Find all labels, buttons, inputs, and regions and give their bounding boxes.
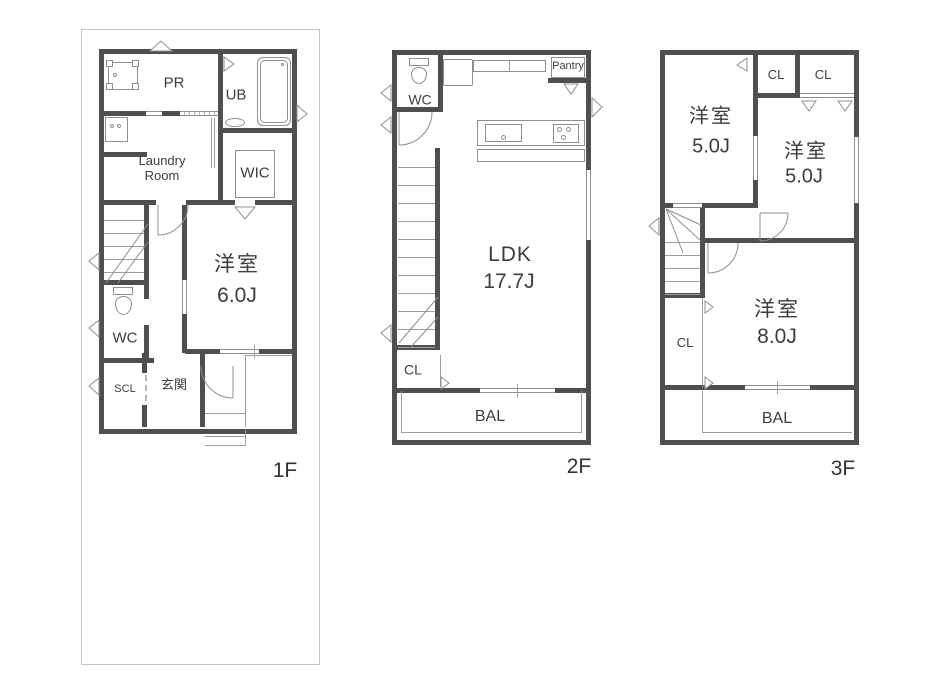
room-size-bedroom3: 8.0J [757,324,797,350]
vent-triangle [381,117,391,133]
door-triangle [705,377,713,389]
door-triangle [592,98,602,117]
room-size-ldk: 17.7J [483,269,534,295]
floor-label-1f: 1F [273,459,298,483]
window [586,170,591,240]
stair-run-line [411,317,438,347]
door-arc [760,213,788,241]
room-label-entrance: 玄関 [161,377,187,393]
room-label-cl2: CL [815,67,832,83]
room-size-bedroom1: 5.0J [692,135,730,160]
room-label-bedroom1: 洋室 [689,105,733,130]
window [854,137,859,203]
door-triangle [224,57,234,71]
room-label-cl1: CL [768,67,785,83]
floor-plan-canvas: PR UB Laundry Room WIC 洋室 6.0J WC SCL 玄関… [0,0,945,700]
room-label-balcony: BAL [475,407,505,427]
room-label-ub: UB [226,87,247,106]
room-size-bedroom: 6.0J [217,283,257,309]
vent-triangle [649,218,659,235]
porch-step [205,436,245,437]
door-triangle [838,101,852,111]
vent-triangle [381,325,391,342]
door-triangle [235,207,255,219]
stair-run-line [399,297,438,343]
room-label-ldk: LDK [488,242,532,268]
stair-run-line [106,224,148,283]
plan-symbols [104,54,292,429]
floor-plan-2f: WC Pantry LDK 17.7J CL BAL [392,50,591,445]
door-arc [158,205,188,235]
door-triangle [802,101,816,111]
room-label-pantry: Pantry [552,60,584,74]
door-triangle [441,377,449,389]
room-label-cl3: CL [677,335,694,351]
door-arc [708,243,738,273]
door-arc [201,366,233,398]
stair-run-line [666,209,701,241]
room-label-bedroom2: 洋室 [784,140,828,165]
room-label-laundry: Laundry [139,153,186,169]
room-label-scl: SCL [114,383,135,397]
porch-step [205,445,245,446]
room-label-wc: WC [408,91,431,109]
room-label-bedroom: 洋室 [214,252,260,278]
door-triangle [564,84,578,94]
room-label-wic: WIC [240,165,269,184]
floor-label-2f: 2F [567,455,592,479]
floor-plan-3f: 洋室 5.0J CL CL 洋室 5.0J CL 洋室 8.0J BAL [660,50,859,445]
room-label-pr: PR [164,75,185,94]
stair-run-line [118,242,148,283]
door-triangle [705,301,713,313]
room-label-cl: CL [404,361,422,379]
room-size-bedroom2: 5.0J [785,165,823,190]
room-label-balcony: BAL [762,409,792,429]
room-label-bedroom3: 洋室 [754,297,800,323]
door-triangle [737,58,747,71]
floor-label-3f: 3F [831,457,856,481]
room-label-wc: WC [113,330,138,349]
floor-plan-1f: PR UB Laundry Room WIC 洋室 6.0J WC SCL 玄関 [99,49,297,434]
door-arc [399,112,432,145]
porch-step [245,430,246,446]
room-label-laundry: Room [145,168,180,184]
vent-triangle [381,85,391,101]
